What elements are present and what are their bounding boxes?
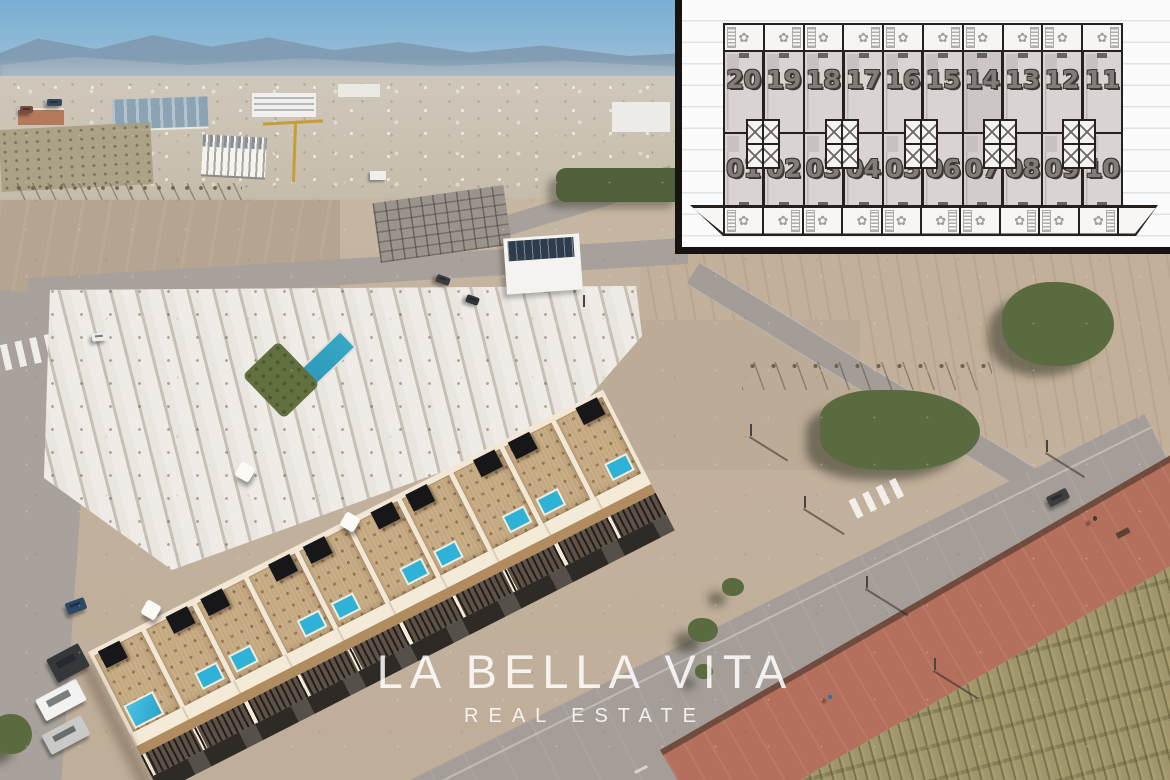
plan-terrace-strip: ✿ ✿ ✿ ✿ ✿ ✿ ✿ ✿ ✿ ✿: [692, 208, 1156, 234]
watermark: LA BELLA VITA REAL ESTATE: [0, 648, 1170, 726]
round-table-icon: ✿: [817, 214, 828, 227]
tree: [688, 618, 718, 642]
brand-name: LA BELLA VITA: [0, 648, 1170, 695]
round-table-icon: ✿: [935, 214, 946, 227]
white-building: [338, 84, 380, 97]
plan-terrace-cell: ✿: [762, 208, 801, 234]
stair-core-icon: [983, 119, 1017, 169]
plan-terrace-cell: ✿: [842, 25, 882, 50]
round-table-icon: ✿: [818, 31, 829, 44]
round-table-icon: ✿: [778, 31, 789, 44]
plan-terrace-cell: ✿: [920, 208, 959, 234]
bare-tree-row: [742, 362, 992, 390]
plan-terrace-cell: ✿: [922, 25, 962, 50]
round-table-icon: ✿: [1054, 214, 1065, 227]
lamppost: [866, 576, 868, 588]
plan-terrace-cell: ✿: [999, 208, 1038, 234]
brand-tagline: REAL ESTATE: [0, 706, 1170, 726]
round-table-icon: ✿: [1093, 214, 1104, 227]
aerial-development-photo: LA BELLA VITA REAL ESTATE ✿ ✿ ✿ ✿ ✿ ✿ ✿ …: [0, 0, 1170, 780]
office-building: [252, 93, 316, 117]
plan-terrace-cell: ✿: [763, 25, 803, 50]
round-table-icon: ✿: [778, 214, 789, 227]
plan-terrace-cell: ✿: [803, 25, 843, 50]
car: [92, 332, 108, 341]
white-building: [612, 102, 670, 132]
round-table-icon: ✿: [1057, 31, 1068, 44]
car: [47, 99, 62, 106]
plan-terrace-cell: ✿: [1002, 25, 1042, 50]
lamppost: [583, 295, 585, 307]
stair-core-icon: [746, 119, 780, 169]
round-table-icon: ✿: [1017, 31, 1028, 44]
plan-terrace-cell: ✿: [802, 208, 841, 234]
plan-terrace-cell: ✿: [959, 208, 998, 234]
lamppost: [1046, 440, 1048, 452]
round-table-icon: ✿: [898, 31, 909, 44]
plan-terrace-cell: ✿: [1038, 208, 1077, 234]
plan-terrace-cell: ✿: [725, 25, 763, 50]
plan-terrace-cell: ✿: [882, 25, 922, 50]
round-table-icon: ✿: [1014, 214, 1025, 227]
plan-terrace-cell: ✿: [1078, 208, 1119, 234]
stair-core-icon: [1062, 119, 1096, 169]
plan-terrace-cell: ✿: [1041, 25, 1081, 50]
orchard-field: [0, 122, 154, 192]
stair-core-icon: [904, 119, 938, 169]
site-plan-inset: ✿ ✿ ✿ ✿ ✿ ✿ ✿ ✿ ✿ ✿ 20 19 18 17 16 15 14…: [675, 0, 1170, 254]
round-table-icon: ✿: [977, 31, 988, 44]
round-table-icon: ✿: [937, 31, 948, 44]
round-table-icon: ✿: [1097, 31, 1108, 44]
tree-cluster: [1002, 282, 1114, 366]
round-table-icon: ✿: [896, 214, 907, 227]
tree: [722, 578, 744, 596]
plan-building-outline: ✿ ✿ ✿ ✿ ✿ ✿ ✿ ✿ ✿ ✿ 20 19 18 17 16 15 14…: [723, 23, 1123, 207]
plan-terrace-cell: ✿: [723, 208, 762, 234]
plan-terrace-cell: ✿: [841, 208, 880, 234]
plan-terrace-cell: ✿: [881, 208, 920, 234]
stair-core-icon: [825, 119, 859, 169]
tree-row: [556, 168, 686, 202]
plan-terrace-cell: ✿: [1081, 25, 1121, 50]
round-table-icon: ✿: [856, 214, 867, 227]
plan-terrace-cell: ✿: [962, 25, 1002, 50]
tree-cluster: [820, 390, 980, 470]
house-with-solar-panels: [503, 233, 583, 294]
round-table-icon: ✿: [975, 214, 986, 227]
townhouse-row-under-construction: [201, 134, 267, 179]
round-table-icon: ✿: [858, 31, 869, 44]
car: [20, 106, 33, 113]
tower-crane-mast: [292, 124, 297, 182]
round-table-icon: ✿: [738, 214, 749, 227]
cyclist: [1093, 516, 1097, 521]
plan-terrace-row-bottom: ✿ ✿ ✿ ✿ ✿ ✿ ✿ ✿ ✿ ✿: [690, 205, 1158, 236]
plan-terrace-row-top: ✿ ✿ ✿ ✿ ✿ ✿ ✿ ✿ ✿ ✿: [725, 25, 1121, 52]
round-table-icon: ✿: [738, 31, 749, 44]
lamppost: [804, 496, 806, 508]
lamppost: [750, 424, 752, 436]
white-van: [370, 171, 386, 180]
